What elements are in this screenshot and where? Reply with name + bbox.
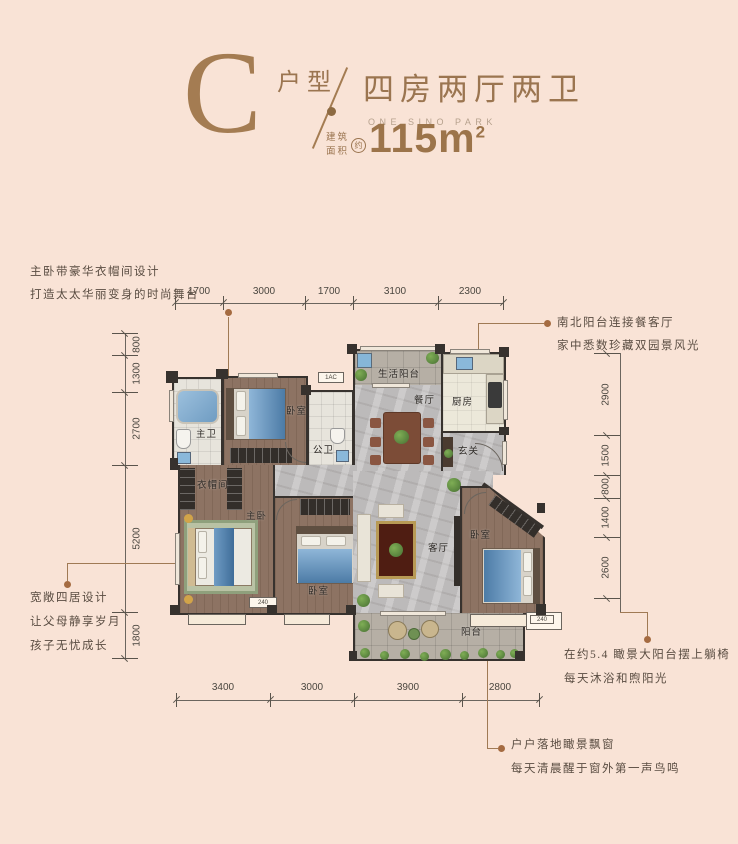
sliding-door [380, 611, 446, 616]
wall-pier [515, 651, 525, 661]
bathtub [176, 389, 219, 424]
dim-tick [270, 693, 271, 707]
plant [447, 478, 461, 492]
bay-window [188, 614, 246, 625]
washer [357, 353, 372, 368]
annotation-baywindow-line2: 每天清晨醒于窗外第一声鸟鸣 [511, 760, 680, 776]
dim-label: 1300 [132, 352, 143, 396]
plant [355, 369, 367, 381]
leader-dot [64, 581, 71, 588]
bed-headboard [533, 548, 540, 604]
pillow [326, 536, 346, 546]
bedside-lamp [184, 595, 193, 604]
wardrobe [227, 468, 242, 510]
chair [370, 418, 381, 428]
toilet [176, 429, 191, 449]
leader-line [487, 748, 498, 749]
pillow [236, 391, 246, 411]
plant [360, 648, 370, 658]
balcony-table [408, 628, 420, 640]
pillow [198, 531, 207, 553]
bathroom-sink [336, 450, 349, 462]
room-label-dining: 餐厅 [414, 392, 435, 406]
chair [423, 437, 434, 447]
balcony-chair [388, 621, 407, 640]
window [169, 390, 174, 422]
leader-line [478, 323, 544, 324]
plant [400, 649, 410, 659]
annotation-balcony-line2: 家中悉数珍藏双园景风光 [557, 337, 700, 353]
plant [380, 651, 389, 660]
balcony-door [372, 383, 410, 388]
room-label-master-bath: 主卫 [196, 426, 217, 440]
wardrobe [180, 468, 195, 510]
window [450, 349, 490, 354]
room-label-service-balcony: 生活阳台 [378, 366, 420, 380]
room-label-bedroom-right: 卧室 [470, 527, 491, 541]
dim-bottom-line [176, 700, 539, 701]
leader-dot [498, 745, 505, 752]
armchair [378, 584, 404, 598]
bed-blanket [214, 528, 234, 586]
window [503, 380, 508, 420]
bed-headboard [188, 528, 195, 586]
bedside-lamp [184, 514, 193, 523]
pillow [523, 552, 532, 572]
dim-label: 2800 [476, 682, 524, 693]
room-label-closet: 衣帽间 [197, 477, 229, 491]
dim-tick [305, 296, 306, 310]
dim-label: 5200 [132, 517, 143, 561]
area-superscript: 2 [476, 122, 486, 141]
room-label-master-bedroom: 主卧 [246, 508, 267, 522]
chair [423, 455, 434, 465]
dim-tick [462, 693, 463, 707]
dim-label: 2900 [601, 373, 612, 417]
dim-tick [354, 693, 355, 707]
type-label: 户型 [277, 62, 337, 97]
wardrobe [300, 499, 350, 515]
corridor [273, 465, 357, 500]
table-centerpiece [394, 430, 409, 444]
dim-right-line [620, 353, 621, 612]
layout-title: 四房两厅两卫 [363, 64, 585, 109]
wall-pier [166, 371, 178, 383]
wall-pier [347, 344, 357, 354]
annotation-closet-line1: 主卧带豪华衣帽间设计 [30, 263, 160, 279]
bed-blanket [249, 389, 285, 439]
wardrobe [230, 448, 292, 463]
annotation-closet-line2: 打造太太华丽变身的时尚舞台 [30, 286, 199, 302]
annotation-sunbalcony-line2: 每天沐浴和煦阳光 [564, 670, 668, 686]
chair [370, 437, 381, 447]
ac-label: 1AC [318, 372, 344, 383]
pillow [236, 416, 246, 436]
dim-label: 3000 [240, 286, 288, 297]
room-label-public-bath: 公卫 [313, 442, 334, 456]
dim-label: 1400 [601, 496, 612, 540]
plant [357, 594, 370, 607]
room-label-bedroom-mid: 卧室 [308, 583, 329, 597]
ac-label: 240 [530, 615, 554, 624]
dim-tick [353, 296, 354, 310]
stove [488, 382, 502, 408]
wall-pier [170, 605, 180, 615]
annotation-fourroom-line1: 宽敞四居设计 [30, 589, 108, 605]
dim-label: 2300 [446, 286, 494, 297]
leader-line [647, 612, 648, 636]
wall-pier [499, 427, 509, 435]
kitchen-sink [456, 357, 473, 370]
leader-line [620, 612, 648, 613]
annotation-sunbalcony-line1: 在约5.4 瞰景大阳台摆上躺椅 [564, 646, 730, 662]
wall-pier [349, 651, 357, 661]
dim-tick [594, 598, 620, 599]
dim-left-line [125, 333, 126, 658]
wall-pier [435, 344, 445, 354]
area-prefix-line1: 建筑 [326, 129, 349, 143]
bed-blanket [298, 549, 352, 583]
window [175, 533, 180, 585]
plant [444, 449, 453, 458]
wall-pier [536, 604, 546, 615]
plant [460, 651, 469, 660]
sofa [357, 514, 371, 582]
dim-label: 2600 [601, 546, 612, 590]
pillow [301, 536, 321, 546]
wall-pier [216, 369, 228, 379]
plant [440, 649, 451, 660]
balcony-chair [421, 620, 439, 638]
pillow [523, 576, 532, 596]
wall-pier [301, 385, 311, 395]
dim-label: 1700 [305, 286, 353, 297]
room-label-living: 客厅 [428, 540, 449, 554]
plant [420, 652, 429, 661]
dim-top-line [175, 303, 503, 304]
chair [370, 455, 381, 465]
dim-tick [112, 658, 138, 659]
dim-tick [594, 353, 620, 354]
room-label-foyer: 玄关 [458, 443, 479, 457]
chair [423, 418, 434, 428]
pillow [198, 557, 207, 579]
area-prefix-line2: 面积 [326, 143, 349, 157]
plant [496, 650, 505, 659]
plant [478, 648, 488, 658]
dim-label: 3100 [371, 286, 419, 297]
wall-pier [346, 605, 356, 615]
wall-pier [499, 347, 509, 357]
bathroom-sink [177, 452, 191, 464]
kitchen-counter [443, 354, 504, 374]
annotation-fourroom-line3: 孩子无忧成长 [30, 637, 108, 653]
area-number: 115m [369, 115, 476, 161]
dim-tick [176, 693, 177, 707]
leader-line [67, 563, 68, 581]
dim-label: 3000 [288, 682, 336, 693]
window [238, 373, 278, 378]
leader-line [478, 323, 479, 349]
wall-pier [537, 503, 545, 513]
annotation-fourroom-line2: 让父母静享岁月 [30, 613, 121, 629]
type-letter: C [183, 34, 262, 152]
plant [358, 620, 370, 632]
window [360, 346, 436, 351]
dim-label: 2700 [132, 407, 143, 451]
annotation-baywindow-line1: 户户落地瞰景飘窗 [511, 736, 615, 752]
dim-tick [503, 296, 504, 310]
bed-headboard [226, 388, 234, 440]
armchair [378, 504, 404, 518]
bay-window [284, 614, 330, 625]
entry-door-gap [502, 441, 507, 465]
bed-headboard [296, 526, 354, 534]
floorplan-page: C 户型 四房两厅两卫 ONE SINO PARK 建筑 面积 约 115m2 … [0, 0, 738, 844]
dim-tick [223, 296, 224, 310]
dim-label: 3900 [384, 682, 432, 693]
wall-pier [267, 605, 277, 615]
dim-tick [539, 693, 540, 707]
leader-dot [544, 320, 551, 327]
room-label-kitchen: 厨房 [452, 394, 473, 408]
bed-blanket [484, 550, 521, 602]
area-value: 115m2 [369, 115, 486, 162]
room-label-bedroom-top: 卧室 [286, 403, 307, 417]
dim-label: 1800 [132, 614, 143, 658]
slash-dot-icon [327, 107, 336, 116]
coffee-table-plant [389, 543, 403, 557]
dim-tick [438, 296, 439, 310]
tv-cabinet [454, 516, 460, 586]
annotation-balcony-line1: 南北阳台连接餐客厅 [557, 314, 674, 330]
leader-dot [225, 309, 232, 316]
dim-tick [112, 465, 138, 466]
dim-label: 3400 [199, 682, 247, 693]
wall-pier [170, 458, 178, 470]
area-approx-badge: 约 [351, 138, 366, 153]
leader-dot [644, 636, 651, 643]
